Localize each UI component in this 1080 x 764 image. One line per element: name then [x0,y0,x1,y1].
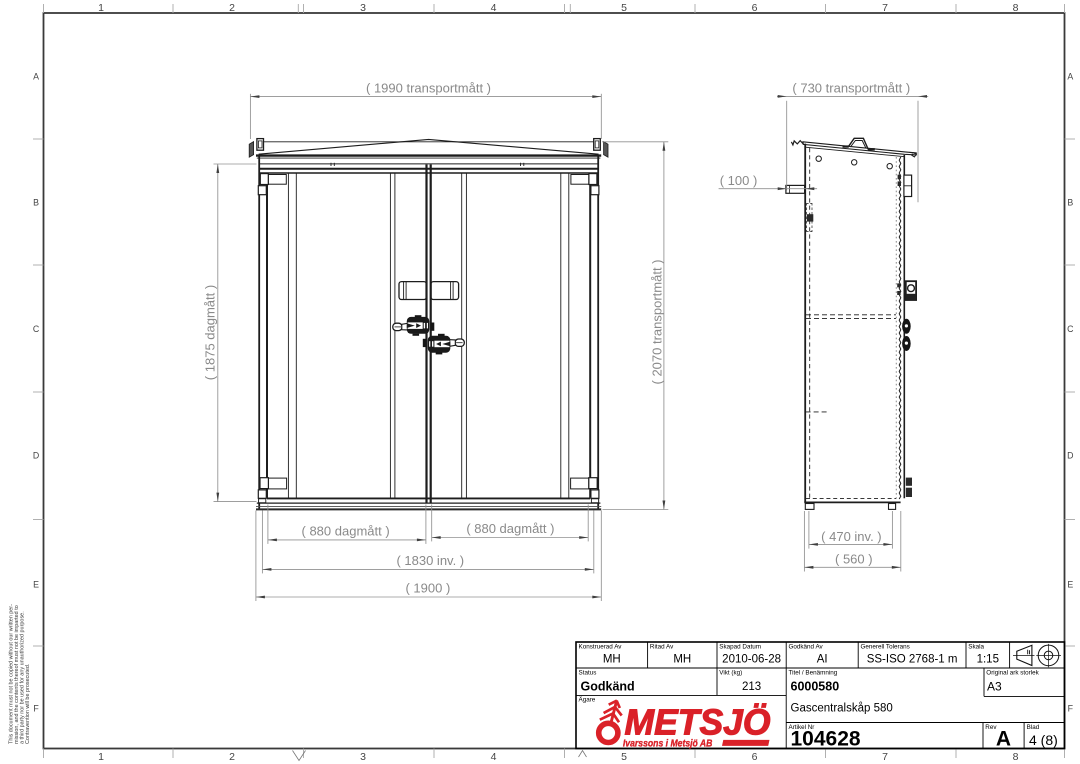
svg-text:1: 1 [98,2,104,14]
svg-text:METSJÖ: METSJÖ [625,702,771,743]
svg-text:D: D [1067,451,1073,461]
svg-text:Godkänd Av: Godkänd Av [789,643,824,650]
svg-text:4: 4 [491,751,497,763]
svg-text:8: 8 [1013,751,1019,763]
svg-text:Contravention will be prosecut: Contravention will be prosecuted. [25,663,31,744]
svg-text:A: A [996,728,1011,751]
svg-text:7: 7 [882,2,888,14]
svg-text:Original ark storlek: Original ark storlek [986,669,1039,676]
svg-text:2: 2 [229,2,235,14]
svg-text:Generell Tolerans: Generell Tolerans [861,643,910,650]
svg-text:( 1875 dagmått ): ( 1875 dagmått ) [203,285,218,380]
svg-text:Vikt (kg): Vikt (kg) [719,669,742,676]
svg-text:Titel / Benämning: Titel / Benämning [789,669,838,676]
svg-text:( 2070 transportmått ): ( 2070 transportmått ) [650,260,665,385]
svg-text:5: 5 [621,2,627,14]
svg-text:( 880 dagmått ): ( 880 dagmått ) [466,521,554,536]
svg-text:3: 3 [360,2,366,14]
svg-text:D: D [33,451,39,461]
svg-text:A: A [1067,72,1073,82]
svg-text:( 880 dagmått ): ( 880 dagmått ) [302,524,390,539]
svg-text:2: 2 [229,751,235,763]
svg-text:F: F [33,704,39,714]
svg-text:Ivarssons i Metsjö AB: Ivarssons i Metsjö AB [623,738,713,749]
svg-text:( 1990 transportmått ): ( 1990 transportmått ) [366,81,491,96]
svg-text:Konstruerad Av: Konstruerad Av [579,643,623,650]
svg-text:( 100 ): ( 100 ) [720,173,758,188]
svg-text:MH: MH [603,654,621,666]
svg-text:( 560 ): ( 560 ) [835,551,873,566]
svg-text:E: E [1067,580,1073,590]
svg-text:B: B [33,198,39,208]
svg-text:Skapad Datum: Skapad Datum [719,643,761,650]
svg-text:3: 3 [360,751,366,763]
svg-text:B: B [1067,198,1073,208]
svg-text:1:15: 1:15 [977,654,999,666]
svg-text:MH: MH [673,654,691,666]
svg-text:2010-06-28: 2010-06-28 [722,654,781,666]
svg-text:( 470 inv. ): ( 470 inv. ) [821,529,881,544]
svg-text:213: 213 [742,681,761,693]
svg-text:C: C [1067,324,1074,334]
svg-text:F: F [1068,704,1074,714]
svg-text:Skala: Skala [968,643,984,650]
svg-text:7: 7 [882,751,888,763]
svg-text:Status: Status [579,669,597,676]
svg-text:Godkänd: Godkänd [581,680,635,694]
svg-text:104628: 104628 [791,728,861,751]
svg-text:( 1900 ): ( 1900 ) [405,580,450,595]
svg-text:Ritad Av: Ritad Av [650,643,674,650]
svg-text:( 1830 inv. ): ( 1830 inv. ) [396,553,464,568]
svg-text:4: 4 [491,2,497,14]
svg-text:A: A [33,72,39,82]
svg-text:( 730 transportmått ): ( 730 transportmått ) [792,81,910,96]
svg-text:Blad: Blad [1027,724,1040,731]
svg-text:A3: A3 [987,680,1002,694]
svg-text:6: 6 [752,751,758,763]
svg-text:E: E [33,580,39,590]
svg-text:AI: AI [817,654,828,666]
svg-text:Ägare: Ägare [579,696,596,704]
svg-text:8: 8 [1013,2,1019,14]
svg-text:6000580: 6000580 [791,680,840,694]
svg-text:1: 1 [98,751,104,763]
svg-text:Gascentralskåp 580: Gascentralskåp 580 [791,703,893,715]
svg-text:C: C [33,324,40,334]
svg-text:6: 6 [752,2,758,14]
svg-text:4 (8): 4 (8) [1029,732,1058,748]
svg-text:5: 5 [621,751,627,763]
svg-text:SS-ISO 2768-1 m: SS-ISO 2768-1 m [867,654,958,666]
